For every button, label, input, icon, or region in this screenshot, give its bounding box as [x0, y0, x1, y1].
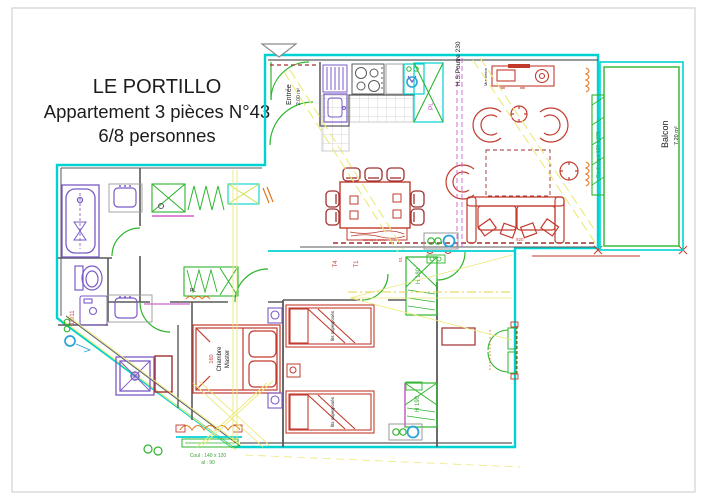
closet-h190-label: H 190: [415, 395, 421, 412]
title-line1: LE PORTILLO: [93, 76, 222, 98]
master-label-2: Master: [225, 350, 231, 368]
balcon-area: 7.20 m²: [674, 126, 680, 145]
left-code-label: 10/11: [70, 310, 76, 325]
corridor-mark: 01: [398, 256, 403, 262]
bunk1-label: lits superposés: [330, 310, 335, 341]
bed-width-label: 160: [209, 354, 215, 363]
closet-h180-label: H 180: [416, 267, 422, 284]
balcon-label: Balcon: [660, 120, 670, 148]
kitchen-rack: [323, 65, 347, 92]
window-dim-1: Coul : 140 x 120: [190, 453, 227, 459]
beam-label: H.S.Poutre 230: [455, 41, 462, 86]
bench-note: canapé conv.: [363, 237, 387, 242]
floor-plan-drawing: LE PORTILLO Appartement 3 pièces N°43 6/…: [0, 0, 707, 500]
kitchen-closet-label: Pl.: [428, 102, 435, 110]
floor-plan-page: LE PORTILLO Appartement 3 pièces N°43 6/…: [0, 0, 707, 500]
sofa-dimension: 920: [516, 237, 524, 242]
title-line2: Appartement 3 pièces N°43: [44, 101, 270, 122]
entree-label: Entrée: [286, 84, 293, 105]
bunk2-label: lits superposés: [330, 396, 335, 427]
type-t1-label: T1: [354, 260, 360, 268]
master-closet-label: PL: [190, 288, 196, 294]
type-t4-label: T4: [333, 260, 339, 268]
sliding-door-label: Coulissant 120 x 225: [596, 131, 602, 178]
window-dim-2: al : 90: [201, 460, 215, 466]
entree-area: 2.00 m²: [296, 88, 302, 105]
title-line3: 6/8 personnes: [98, 125, 215, 146]
master-label-1: Chambre: [217, 346, 223, 371]
